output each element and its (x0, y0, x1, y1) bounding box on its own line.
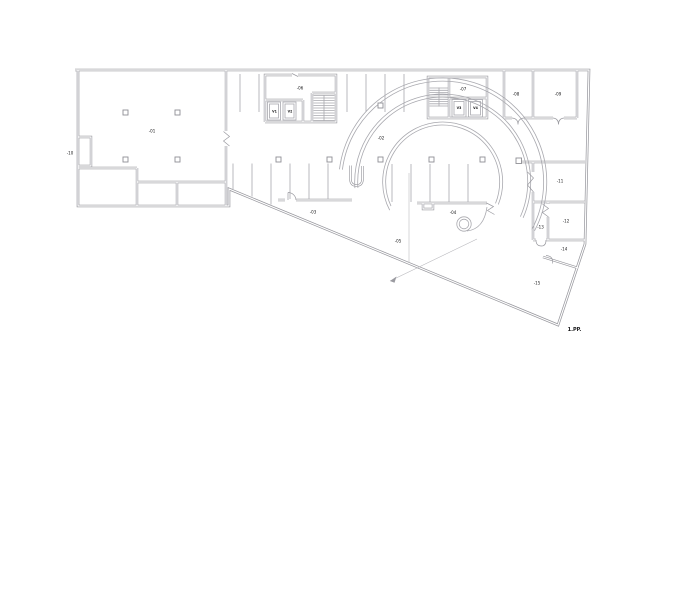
west-core-outer-wall (265, 75, 336, 122)
lobby-exit-swings (536, 240, 546, 246)
column (378, 157, 383, 162)
ramp-inner-curb (383, 122, 503, 210)
room-label-lane: -04 (450, 210, 457, 215)
lobby-door-symbol (543, 204, 549, 217)
column (123, 157, 128, 162)
stair-west (314, 95, 335, 121)
room-label-e2: -12 (563, 219, 570, 224)
column (429, 157, 434, 162)
room-label-ramp: -05 (395, 239, 402, 244)
east-room-door-symbol (528, 172, 534, 192)
lift-label-w2: V2 (288, 110, 293, 114)
floor-plan-page: -01 -10 -02 -03 -04 -05 -06 V1 V2 -07 V3… (0, 0, 697, 600)
parking-door-swing (288, 193, 296, 201)
column (516, 158, 522, 164)
floor-title: 1.PP. (568, 327, 582, 333)
hall-bottom-walls (78, 168, 226, 206)
parking-stall-lines (233, 74, 468, 205)
floor-plan-canvas: -01 -10 -02 -03 -04 -05 -06 V1 V2 -07 V3… (0, 0, 697, 600)
mid-parking-wall-east (417, 203, 487, 209)
column (480, 157, 485, 162)
columns (123, 103, 522, 164)
room-label-ramp-zone: -03 (310, 210, 317, 215)
hall-door-symbol (224, 132, 230, 147)
ramp-arcs (340, 78, 547, 231)
lane-end-door-symbol (487, 203, 495, 215)
room-label-e1: -11 (557, 179, 564, 184)
column (378, 103, 383, 108)
column (123, 110, 128, 115)
room-label-lobby: -13 (537, 225, 544, 230)
room-label-stair-east: -07 (460, 87, 467, 92)
room-label-ne1: -08 (513, 92, 520, 97)
west-core-door-tick (292, 74, 298, 77)
lift-label-w1: V1 (272, 110, 277, 114)
column (175, 110, 180, 115)
store-closet-walls (78, 137, 91, 166)
room-label-store: -10 (67, 151, 74, 156)
ramp-outer-curb (340, 78, 547, 231)
lift-label-e1: V3 (457, 106, 462, 110)
column (327, 157, 332, 162)
column (276, 157, 281, 162)
room-label-hall: -01 (149, 129, 156, 134)
room-label-ne2: -09 (555, 92, 562, 97)
room-label-garage: -02 (378, 136, 385, 141)
lift-label-e2: V4 (473, 106, 478, 110)
stair-east (430, 88, 449, 107)
section-lines (390, 173, 477, 283)
room-label-stair-west: -06 (297, 86, 304, 91)
leader-arrowhead (390, 277, 397, 283)
room-label-yard: -15 (534, 281, 541, 286)
column (175, 157, 180, 162)
room-label-entry: -14 (561, 247, 568, 252)
ramp-island-curb (351, 166, 363, 186)
